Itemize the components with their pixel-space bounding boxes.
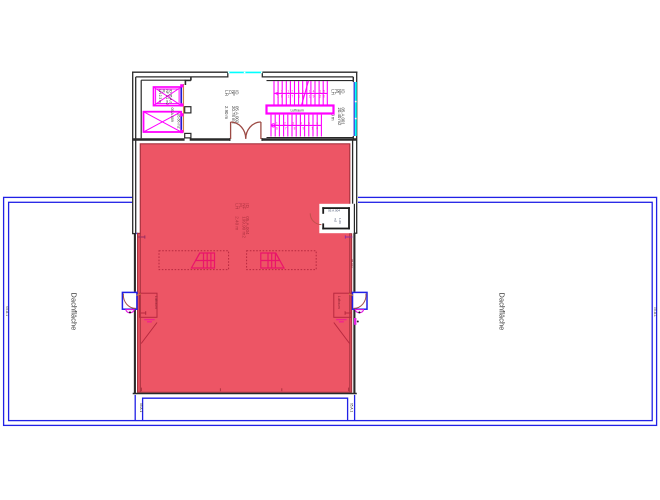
svg-text:199.90 m2: 199.90 m2 <box>241 216 246 238</box>
svg-text:2.40 m: 2.40 m <box>234 216 239 230</box>
svg-text:LH: LH <box>224 90 229 96</box>
svg-text:1.66: 1.66 <box>338 218 342 224</box>
svg-text:Luftraum: Luftraum <box>154 296 158 309</box>
svg-text:05.A.1: 05.A.1 <box>350 403 354 412</box>
svg-text:Luftraum: Luftraum <box>337 296 341 309</box>
svg-text:05.A.1: 05.A.1 <box>653 307 657 317</box>
svg-text:05.A.1: 05.A.1 <box>5 306 9 316</box>
svg-text:05.011: 05.011 <box>350 259 354 268</box>
svg-text:2.90 m: 2.90 m <box>224 106 229 120</box>
svg-text:05.A.004: 05.A.004 <box>328 209 340 213</box>
svg-text:05.A.1: 05.A.1 <box>139 403 143 412</box>
svg-text:LH: LH <box>234 203 239 209</box>
svg-text:LH 2.3 m: LH 2.3 m <box>158 90 162 104</box>
svg-text:m2: m2 <box>334 218 338 222</box>
svg-text:05.A.009: 05.A.009 <box>170 108 174 122</box>
svg-text:Dachfläche: Dachfläche <box>497 292 506 330</box>
svg-text:LH: LH <box>330 89 335 95</box>
svg-text:Luftraum: Luftraum <box>291 108 305 112</box>
svg-text:26.66 m2: 26.66 m2 <box>177 114 181 129</box>
svg-text:20.40 m2: 20.40 m2 <box>337 108 342 127</box>
svg-text:Dachfläche: Dachfläche <box>69 292 78 330</box>
